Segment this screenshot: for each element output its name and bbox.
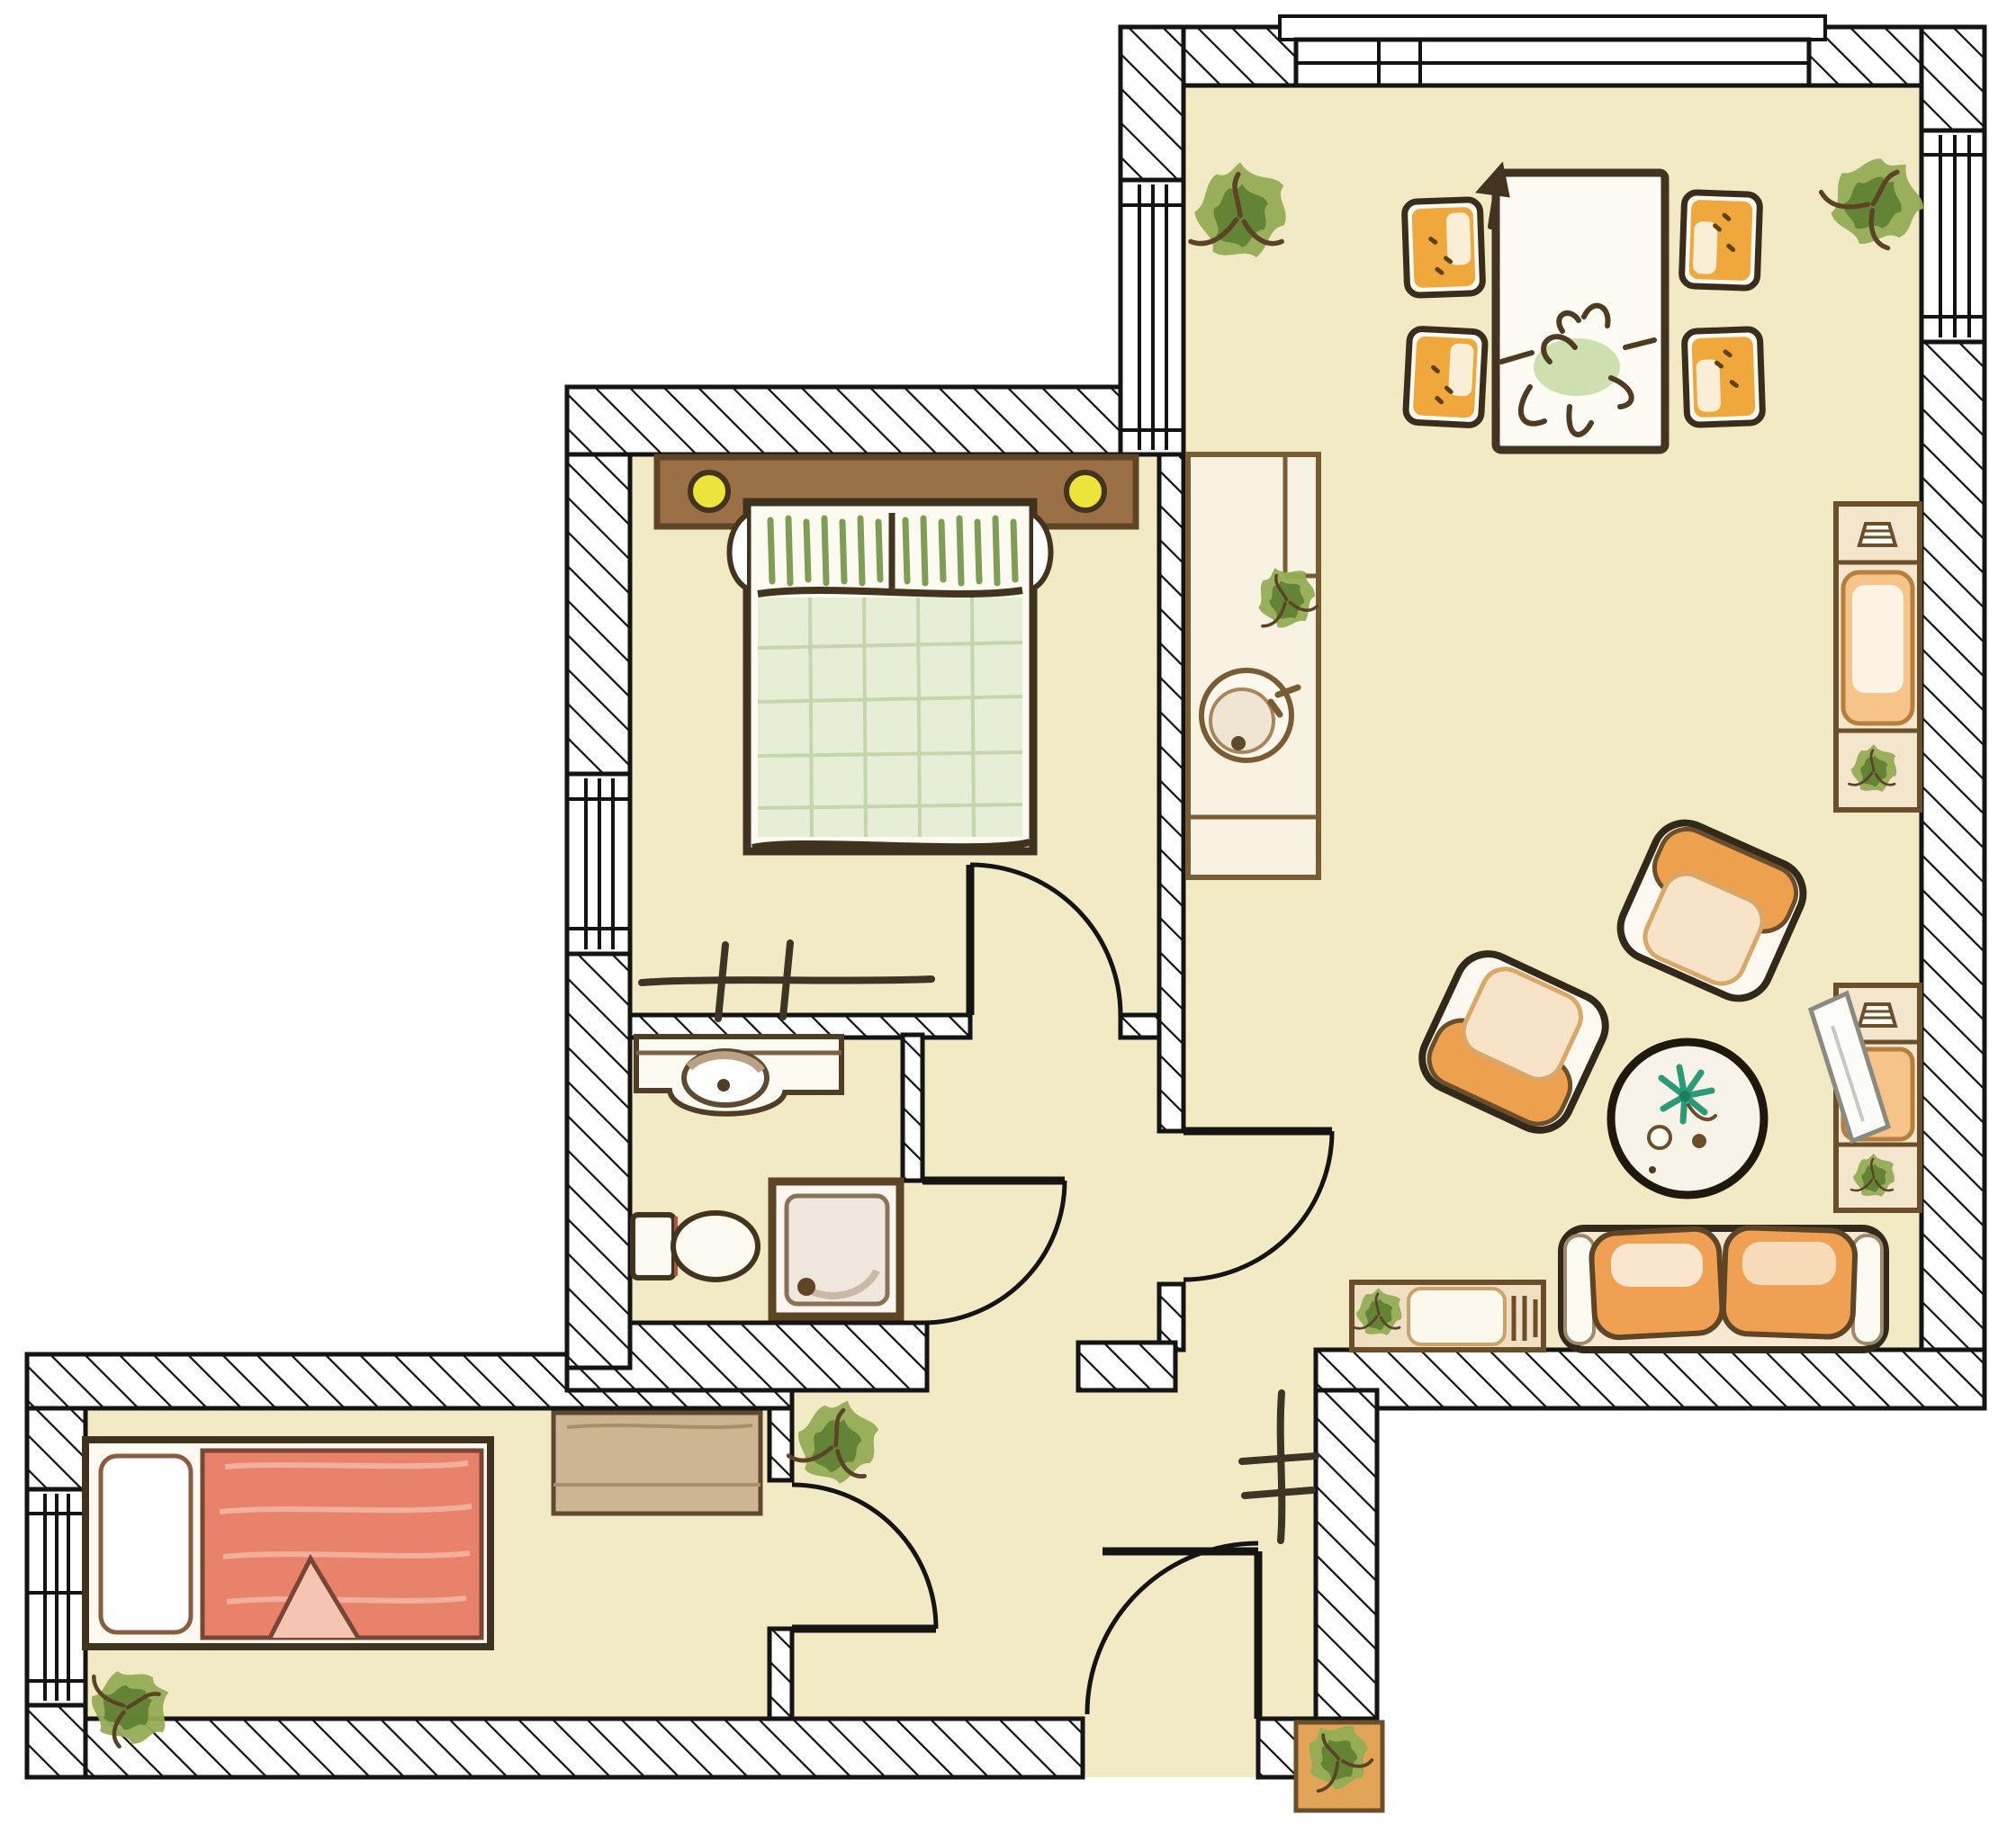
wall-party-stub-below-living-door — [1159, 1284, 1183, 1350]
floor-plan-svg — [0, 0, 2016, 1833]
toilet-bowl — [673, 1213, 758, 1280]
dining-chair-left-2 — [1405, 328, 1485, 426]
double-bed-foot-edge — [752, 842, 1030, 848]
sofa-arm-right — [1853, 1235, 1882, 1343]
kitchen-counter — [1188, 454, 1318, 877]
tv-sideboard-cushion — [1408, 1289, 1505, 1344]
wall-unit-upper-cabinet-top — [1852, 585, 1903, 693]
single-bed-pillow — [101, 1456, 191, 1632]
radiator-symbol-hallway — [1281, 1393, 1282, 1541]
coffee-table-cup — [1649, 1127, 1670, 1148]
dining-chair-right-1 — [1681, 193, 1760, 289]
wall-bathroom-right — [903, 1035, 922, 1181]
floor-plan-page: Hand-drawn apartment floor plan with liv… — [0, 0, 2016, 1833]
plan-root — [27, 16, 1984, 1811]
wall-kidsroom-left-lower — [27, 1705, 85, 1777]
toilet-tank — [633, 1215, 674, 1278]
sofa-cushion-right-highlight — [1742, 1242, 1836, 1285]
double-bed-blanket — [758, 598, 1022, 837]
wall-kidsroom-right-upper — [769, 1408, 792, 1480]
wall-right-upper — [1921, 27, 1984, 130]
shower-drain — [797, 1278, 815, 1296]
wall-bedroom-left-lower — [567, 954, 630, 1368]
sofa-cushion-left-highlight — [1611, 1244, 1703, 1287]
coffee-table — [1611, 1042, 1764, 1195]
double-bed-headline — [758, 590, 1022, 594]
bedroom-lamp-right — [1066, 472, 1104, 510]
dining-chair-left-1 — [1404, 200, 1483, 296]
wall-bottom-left-of-entrance — [27, 1719, 1083, 1777]
wall-corridor-bottom-stub — [1078, 1343, 1175, 1390]
wall-bedroom-bottom-right-segment — [1120, 1015, 1159, 1038]
wall-bedroom-top — [567, 387, 1183, 454]
wall-unit-lower-dish — [1859, 1004, 1895, 1026]
wall-living-left-upper — [1120, 27, 1183, 180]
sofa-arm-left — [1565, 1235, 1594, 1343]
bathroom-sink-drain — [717, 1079, 730, 1092]
wall-right-lower — [1921, 342, 1984, 1408]
wall-party-bedroom-living — [1159, 454, 1183, 1131]
wall-unit-upper-dish — [1859, 524, 1895, 545]
window-living-top-outer-sill — [1280, 16, 1825, 40]
kitchen-sink-drain — [1231, 736, 1246, 750]
bedroom-lamp-left — [690, 472, 728, 510]
coffee-table-dot — [1649, 1166, 1656, 1173]
dining-chair-right-2 — [1684, 329, 1763, 426]
coffee-table-small-item — [1692, 1134, 1706, 1148]
wall-living-bottom — [1316, 1350, 1984, 1408]
wall-kidsroom-right-lower — [769, 1629, 792, 1719]
